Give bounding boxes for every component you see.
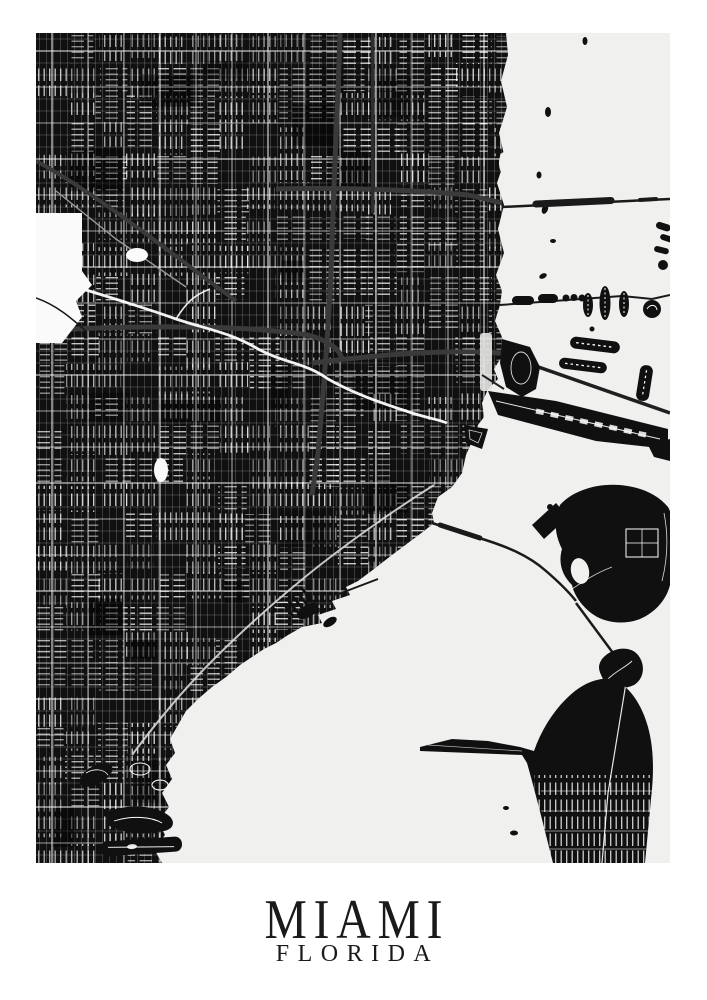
blue-lagoon-pond bbox=[154, 458, 168, 482]
city-title: MIAMI bbox=[53, 892, 654, 948]
poster-subtitle-block: FLORIDA bbox=[0, 942, 707, 966]
miami-street-map bbox=[36, 33, 670, 863]
map-canvas bbox=[36, 33, 670, 863]
map-poster: MIAMI FLORIDA bbox=[0, 0, 707, 1000]
state-subtitle: FLORIDA bbox=[0, 942, 707, 966]
poster-title-block: MIAMI bbox=[0, 892, 707, 948]
rail-corridor bbox=[371, 33, 375, 213]
bayfront-park bbox=[480, 333, 492, 391]
grapeland-lake bbox=[126, 248, 148, 262]
